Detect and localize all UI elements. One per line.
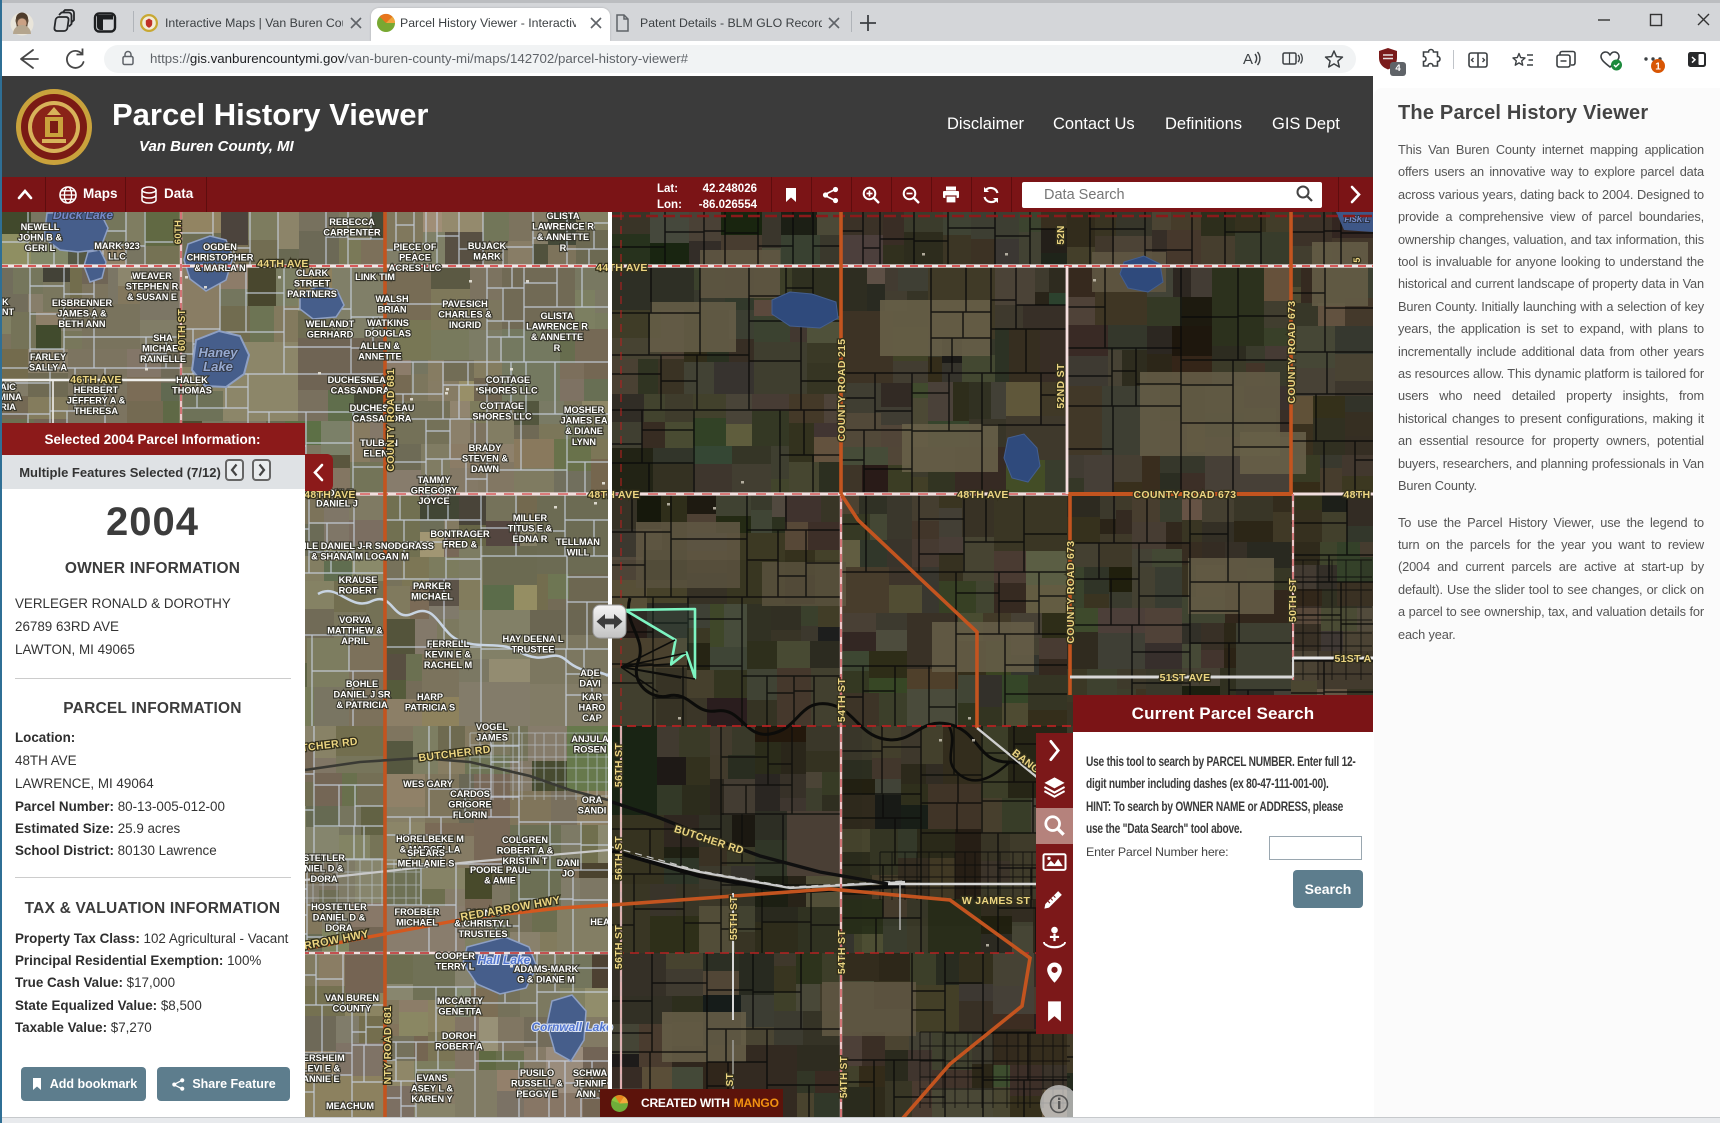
svg-text:46TH AVE: 46TH AVE (70, 374, 121, 386)
svg-text:STREET: STREET (294, 279, 331, 289)
svg-text:DAWN: DAWN (471, 464, 499, 474)
svg-text:MCCARTY: MCCARTY (437, 996, 483, 1006)
svg-text:ACRES LLC: ACRES LLC (389, 263, 442, 273)
svg-text:HOSTETLER: HOSTETLER (311, 902, 367, 912)
svg-text:FLORIN: FLORIN (453, 810, 488, 820)
svg-text:STEVEN &: STEVEN & (462, 454, 508, 464)
svg-text:VAN BUREN: VAN BUREN (325, 993, 379, 1003)
svg-text:PEGGY E: PEGGY E (516, 1089, 557, 1099)
svg-text:COLGREN: COLGREN (502, 835, 548, 845)
svg-text:VORVA: VORVA (339, 615, 371, 625)
svg-text:OGDEN: OGDEN (203, 242, 237, 252)
svg-text:ORA: ORA (582, 795, 603, 805)
svg-text:POORE PAUL: POORE PAUL (470, 865, 530, 875)
svg-text:HAY DEENA L: HAY DEENA L (503, 634, 564, 644)
svg-text:MINA: MINA (0, 392, 22, 402)
svg-text:AIC: AIC (0, 382, 16, 392)
svg-text:DUCHESNEAU: DUCHESNEAU (350, 403, 415, 413)
svg-text:51ST AVE: 51ST AVE (1160, 672, 1211, 684)
svg-text:GLISTA: GLISTA (546, 212, 579, 221)
svg-text:BOHLE: BOHLE (346, 679, 378, 689)
svg-text:SCHWA: SCHWA (573, 1068, 608, 1078)
svg-text:INGRID: INGRID (449, 320, 482, 330)
svg-text:EDNA R: EDNA R (513, 534, 548, 544)
svg-text:TITUS E &: TITUS E & (508, 524, 553, 534)
svg-text:CARPENTER: CARPENTER (323, 228, 381, 238)
svg-text:JENNIF: JENNIF (574, 1079, 607, 1089)
svg-text:EISBRENNER: EISBRENNER (52, 298, 113, 308)
svg-text:51ST A: 51ST A (1334, 653, 1371, 665)
svg-text:KAR: KAR (582, 692, 602, 702)
svg-text:SHA: SHA (153, 333, 173, 343)
svg-text:COUNTY ROAD 215: COUNTY ROAD 215 (836, 339, 848, 442)
svg-text:WILL: WILL (567, 548, 590, 558)
svg-text:THOMAS: THOMAS (172, 386, 212, 396)
svg-text:56TH ST: 56TH ST (613, 743, 625, 787)
svg-text:PIECE OF: PIECE OF (394, 242, 437, 252)
svg-text:PARKER: PARKER (413, 581, 451, 591)
svg-text:TERRY L: TERRY L (436, 962, 475, 972)
svg-text:LINK TIM: LINK TIM (355, 272, 395, 282)
svg-text:PARTNERS: PARTNERS (287, 289, 337, 299)
svg-text:GLISTA: GLISTA (540, 311, 573, 321)
svg-text:PUSILO: PUSILO (520, 1068, 554, 1078)
svg-text:R: R (560, 243, 567, 253)
svg-text:LAWRENCE R: LAWRENCE R (532, 222, 594, 232)
svg-text:RACHEL M: RACHEL M (424, 660, 473, 670)
svg-text:GREGORY: GREGORY (411, 486, 458, 496)
svg-text:LLC: LLC (108, 252, 126, 262)
svg-text:LAWRENCE R: LAWRENCE R (526, 322, 588, 332)
svg-text:& DIANE: & DIANE (565, 426, 603, 436)
svg-text:RAINELLE: RAINELLE (140, 354, 186, 364)
svg-text:54TH ST: 54TH ST (836, 930, 848, 974)
svg-text:KAREN Y: KAREN Y (411, 1094, 452, 1104)
svg-text:MATTHEW &: MATTHEW & (327, 626, 383, 636)
svg-text:BOHLE DANIEL J-R SNODGRASS: BOHLE DANIEL J-R SNODGRASS (286, 541, 434, 551)
svg-text:48TH AVE: 48TH AVE (588, 489, 639, 501)
svg-text:ROBERT: ROBERT (339, 586, 378, 596)
svg-text:54TH ST: 54TH ST (839, 1056, 850, 1098)
svg-text:BETH ANN: BETH ANN (58, 319, 105, 329)
svg-text:HORELBEKE M: HORELBEKE M (396, 834, 464, 844)
svg-text:50TH ST: 50TH ST (1287, 578, 1299, 622)
svg-text:ANJULA: ANJULA (571, 734, 609, 744)
svg-text:KRAUSE: KRAUSE (339, 575, 378, 585)
svg-text:PEACE: PEACE (399, 253, 431, 263)
svg-text:5: 5 (1352, 257, 1362, 262)
svg-text:FRED &: FRED & (443, 540, 478, 550)
svg-text:ROSEN: ROSEN (574, 745, 607, 755)
svg-text:48TH: 48TH (1344, 489, 1371, 501)
svg-text:& ANNETTE: & ANNETTE (531, 332, 583, 342)
svg-text:44TH AVE: 44TH AVE (596, 262, 647, 274)
svg-text:& SHANA M LOGAN M: & SHANA M LOGAN M (311, 552, 409, 562)
svg-text:CHARLES &: CHARLES & (438, 310, 492, 320)
svg-text:MEHLANIE S: MEHLANIE S (398, 859, 455, 869)
svg-text:& PATRICIA: & PATRICIA (336, 700, 388, 710)
svg-text:JAMES: JAMES (476, 733, 508, 743)
svg-text:SHORES LLC: SHORES LLC (472, 412, 532, 422)
svg-text:LYNN: LYNN (572, 437, 597, 447)
svg-text:PATRICIA S: PATRICIA S (405, 703, 455, 713)
svg-text:EVANS: EVANS (417, 1073, 448, 1083)
svg-text:& SUSAN E: & SUSAN E (127, 292, 177, 302)
svg-text:48TH AVE: 48TH AVE (957, 489, 1008, 501)
svg-text:ADE: ADE (580, 668, 599, 678)
svg-text:STETLER: STETLER (303, 853, 345, 863)
svg-text:CAP: CAP (582, 713, 601, 723)
svg-text:& ANNETTE: & ANNETTE (537, 232, 589, 242)
svg-text:GRIGORE: GRIGORE (448, 800, 491, 810)
svg-text:GENETTA: GENETTA (438, 1007, 482, 1017)
svg-text:COUNTY: COUNTY (333, 1004, 372, 1014)
svg-text:GERHARD: GERHARD (307, 330, 354, 340)
svg-text:BONTRAGER: BONTRAGER (430, 529, 490, 539)
svg-text:TRUSTEES: TRUSTEES (458, 929, 507, 939)
svg-text:JEFFERY A &: JEFFERY A & (67, 396, 126, 406)
svg-text:COOPER: COOPER (435, 951, 475, 961)
svg-text:ANNIE E: ANNIE E (302, 1074, 339, 1084)
svg-text:SHORES LLC: SHORES LLC (478, 386, 538, 396)
svg-text:52ND ST: 52ND ST (1055, 363, 1067, 409)
svg-text:ADAMS-MARK: ADAMS-MARK (514, 964, 579, 974)
svg-text:MICHAEL: MICHAEL (396, 918, 438, 928)
svg-text:ROBERT A: ROBERT A (435, 1042, 483, 1052)
svg-text:56TH ST: 56TH ST (613, 836, 625, 880)
svg-text:60TH ST: 60TH ST (177, 309, 188, 351)
svg-text:LEVI E &: LEVI E & (302, 1064, 341, 1074)
svg-text:COTTAGE: COTTAGE (480, 401, 524, 411)
svg-text:KEVIN E &: KEVIN E & (425, 650, 471, 660)
svg-text:TAMMY: TAMMY (418, 475, 451, 485)
svg-text:JAMES EA: JAMES EA (561, 416, 608, 426)
svg-text:RIA: RIA (0, 402, 16, 412)
svg-text:SPEARS: SPEARS (407, 848, 445, 858)
svg-text:56TH ST: 56TH ST (613, 925, 625, 969)
svg-text:A: A (1243, 51, 1253, 68)
svg-text:54TH ST: 54TH ST (836, 678, 848, 722)
svg-text:DAVI: DAVI (579, 679, 600, 689)
svg-text:WATKINS: WATKINS (367, 318, 409, 328)
svg-text:HARP: HARP (417, 692, 443, 702)
svg-text:FERRELL: FERRELL (427, 639, 470, 649)
svg-text:HERBERT: HERBERT (74, 385, 119, 395)
svg-text:ROBERT A &: ROBERT A & (497, 846, 554, 856)
svg-text:SANDI: SANDI (578, 806, 607, 816)
svg-text:1: 1 (1655, 62, 1661, 73)
svg-text:MILLER: MILLER (513, 513, 548, 523)
svg-text:DOUGLAS: DOUGLAS (365, 329, 411, 339)
svg-text:CHRISTOPHER: CHRISTOPHER (187, 253, 254, 263)
svg-text:W JAMES ST: W JAMES ST (962, 895, 1031, 907)
svg-text:NIEL D &: NIEL D & (304, 864, 344, 874)
svg-text:WES GARY: WES GARY (403, 779, 453, 789)
svg-text:CASSANDRA: CASSANDRA (353, 414, 412, 424)
svg-text:44TH AVE: 44TH AVE (257, 258, 308, 270)
svg-text:NTY ROAD 681: NTY ROAD 681 (382, 1006, 394, 1085)
svg-text:REBECCA: REBECCA (329, 217, 375, 227)
svg-text:FROEBER: FROEBER (395, 907, 440, 917)
svg-text:HARO: HARO (578, 703, 605, 713)
svg-text:COTTAGE: COTTAGE (486, 375, 530, 385)
svg-text:NEWELL: NEWELL (21, 222, 60, 232)
svg-text:CASSANDRA: CASSANDRA (331, 386, 390, 396)
svg-text:ANNETTE: ANNETTE (358, 352, 401, 362)
svg-text:R: R (554, 343, 561, 353)
svg-text:52N: 52N (1056, 225, 1067, 244)
svg-text:COUNTY ROAD 673: COUNTY ROAD 673 (1286, 301, 1298, 404)
svg-text:JAMES A &: JAMES A & (57, 309, 107, 319)
svg-text:VOGEL: VOGEL (476, 722, 509, 732)
svg-text:RUSSELL &: RUSSELL & (511, 1079, 563, 1089)
svg-text:WALSH: WALSH (375, 294, 409, 304)
svg-text:DUCHESNEAU: DUCHESNEAU (328, 375, 393, 385)
svg-text:HEA: HEA (590, 917, 610, 927)
svg-text:DANIEL D &: DANIEL D & (313, 913, 366, 923)
svg-text:APRIL: APRIL (341, 636, 369, 646)
svg-text:ASEY L &: ASEY L & (411, 1084, 453, 1094)
svg-text:COUNTY ROAD 673: COUNTY ROAD 673 (1065, 541, 1077, 644)
svg-text:COUNTY ROAD 681: COUNTY ROAD 681 (385, 369, 397, 472)
svg-text:BRIAN: BRIAN (377, 305, 406, 315)
svg-text:WEAVER: WEAVER (132, 271, 172, 281)
svg-text:MOSHER: MOSHER (564, 405, 605, 415)
svg-text:JOHN B &: JOHN B & (18, 233, 62, 243)
svg-text:ALLEN &: ALLEN & (360, 341, 400, 351)
svg-text:THERESA: THERESA (74, 406, 118, 416)
svg-text:60TH: 60TH (173, 220, 184, 244)
svg-text:MEACHUM: MEACHUM (326, 1101, 374, 1111)
svg-text:MARK 923: MARK 923 (94, 241, 139, 251)
svg-text:DANIEL J SR: DANIEL J SR (333, 690, 390, 700)
svg-text:55TH ST: 55TH ST (728, 896, 740, 940)
svg-text:MICHAEL: MICHAEL (411, 592, 453, 602)
svg-text:TRUSTEE: TRUSTEE (512, 645, 555, 655)
svg-text:DORA: DORA (310, 874, 337, 884)
svg-text:& MARLA N: & MARLA N (194, 263, 246, 273)
svg-text:BRADY: BRADY (469, 443, 502, 453)
svg-text:SALLY A: SALLY A (29, 363, 67, 373)
svg-text:CARDOS: CARDOS (450, 789, 490, 799)
svg-text:MARK: MARK (473, 252, 501, 262)
svg-text:FARLEY: FARLEY (30, 352, 66, 362)
svg-text:BUJACK: BUJACK (468, 241, 507, 251)
svg-text:COUNTY ROAD 673: COUNTY ROAD 673 (1134, 489, 1237, 501)
svg-text:NT: NT (2, 307, 15, 317)
svg-text:PAVESICH: PAVESICH (442, 299, 488, 309)
svg-text:WEILANDT: WEILANDT (306, 319, 355, 329)
svg-text:JOYCE: JOYCE (418, 496, 449, 506)
svg-text:& AMIE: & AMIE (484, 876, 516, 886)
svg-text:DOROH: DOROH (442, 1031, 477, 1041)
svg-text:G & DIANE M: G & DIANE M (517, 975, 575, 985)
svg-text:TELLMAN: TELLMAN (556, 537, 600, 547)
svg-text:STEPHEN R: STEPHEN R (126, 282, 179, 292)
svg-text:DANI: DANI (557, 858, 579, 868)
svg-text:HALEK: HALEK (176, 375, 208, 385)
svg-text:GERI L: GERI L (25, 243, 56, 253)
svg-text:JO: JO (562, 869, 574, 879)
